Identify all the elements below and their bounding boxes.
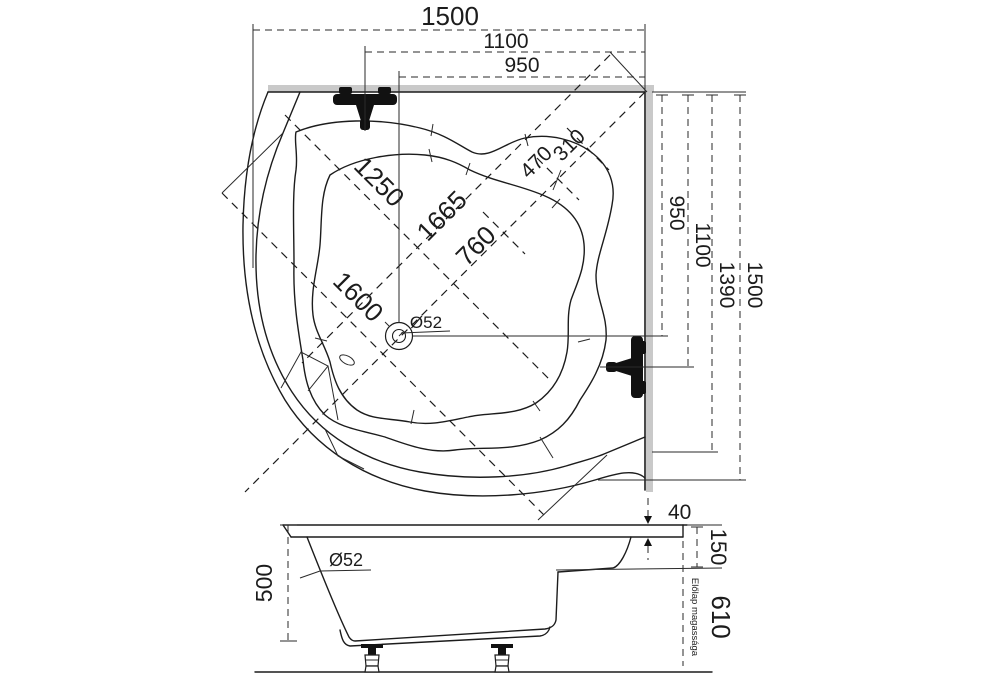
section-view: 500 Ø52 40 150 Előlap magassága 610 [251,498,736,672]
section-drain-diameter: Ø52 [329,550,363,570]
dim-top-1100: 1100 [483,30,528,53]
rim-drop-dimension: 150 [691,527,731,567]
right-wall-bar [646,85,653,492]
drawing-canvas: Ø52 [0,0,990,675]
adjustable-foot-right [491,644,513,672]
section-drain-label: Ø52 [300,550,371,578]
dim-rim-40: 40 [668,501,691,524]
dim-right-1100: 1100 [691,222,714,267]
adjustable-foot-left [361,644,383,672]
panel-note-label: Előlap magassága [689,578,700,657]
section-seat-ledge [558,537,631,572]
top-wall-bar [268,85,654,92]
dim-right-950: 950 [665,195,688,230]
dim-drop-150: 150 [706,529,731,566]
dim-diag-760: 760 [450,220,502,272]
rim-thickness-dimension: 40 [644,498,691,560]
dim-right-1500: 1500 [743,262,766,309]
bathtub-technical-drawing: Ø52 [0,0,990,675]
jet-oval [338,353,356,368]
dim-top-1500: 1500 [421,1,479,31]
dim-front-edge-1600: 1600 [327,266,389,328]
top-dimensions: 1500 1100 950 [253,1,645,323]
dim-right-1390: 1390 [715,262,738,309]
drain: Ø52 [385,313,450,350]
plan-view: Ø52 [222,1,766,520]
depth-dimension: 500 [251,525,297,641]
dim-panel-610: 610 [706,595,736,638]
ledge-extension-line [556,568,722,570]
dim-diag-1250: 1250 [348,151,410,213]
dim-top-950: 950 [504,54,539,77]
dim-depth-500: 500 [251,564,277,602]
section-outer-bottom [340,627,550,646]
